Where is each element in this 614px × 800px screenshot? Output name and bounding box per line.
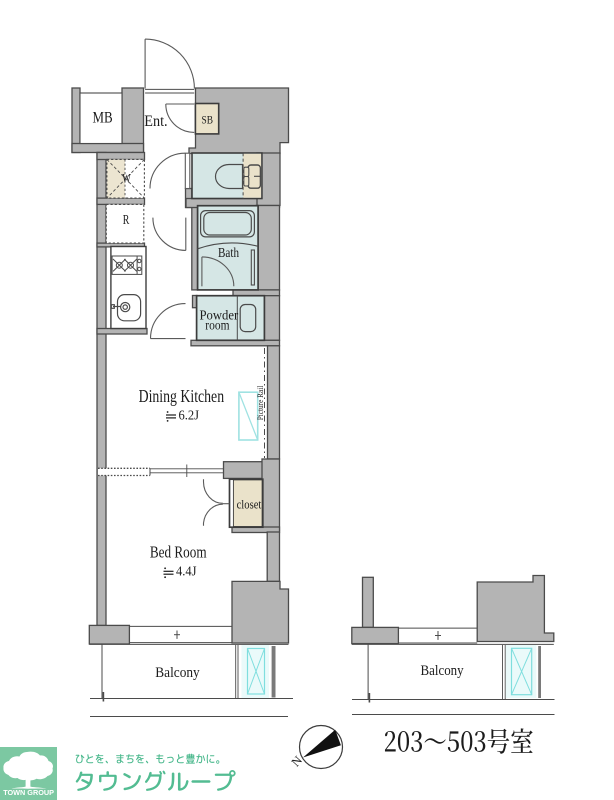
svg-text:4.4J: 4.4J bbox=[176, 565, 197, 580]
svg-text:Bed Room: Bed Room bbox=[150, 542, 207, 561]
svg-text:Ent.: Ent. bbox=[144, 113, 167, 130]
svg-text:R: R bbox=[123, 212, 130, 227]
svg-text:W: W bbox=[122, 172, 131, 186]
svg-text:closet: closet bbox=[237, 497, 262, 511]
svg-text:6.2J: 6.2J bbox=[179, 408, 200, 423]
svg-text:SB: SB bbox=[202, 115, 214, 127]
svg-text:room: room bbox=[205, 318, 230, 333]
svg-text:Bath: Bath bbox=[218, 245, 239, 260]
svg-text:Picture Rail: Picture Rail bbox=[255, 385, 265, 420]
svg-text:Balcony: Balcony bbox=[155, 665, 200, 681]
svg-text:Dining Kitchen: Dining Kitchen bbox=[139, 386, 225, 406]
svg-text:MB: MB bbox=[93, 108, 113, 127]
svg-text:Balcony: Balcony bbox=[421, 663, 465, 679]
svg-text:TOWN GROUP: TOWN GROUP bbox=[3, 788, 54, 797]
